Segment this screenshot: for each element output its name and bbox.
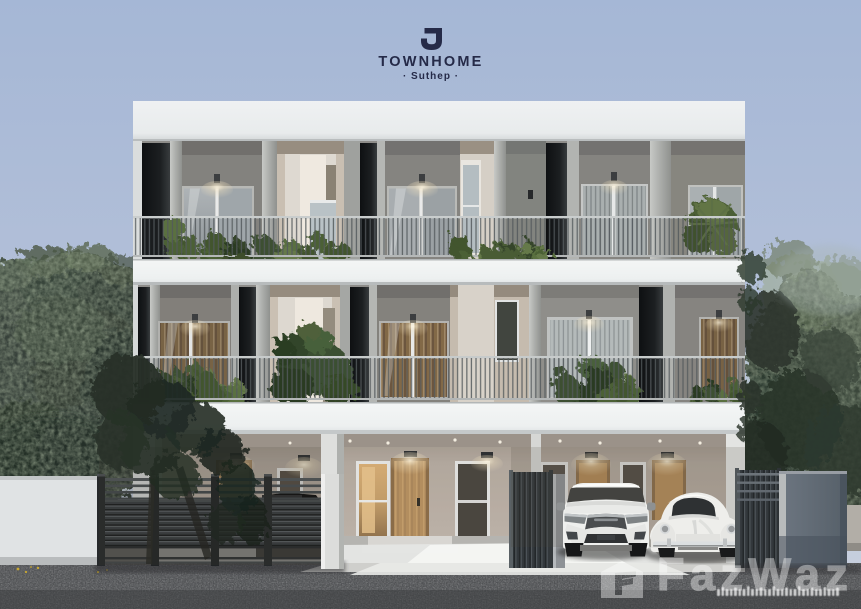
- svg-text:· Suthep ·: · Suthep ·: [403, 71, 459, 82]
- svg-text:TOWNHOME: TOWNHOME: [378, 54, 483, 70]
